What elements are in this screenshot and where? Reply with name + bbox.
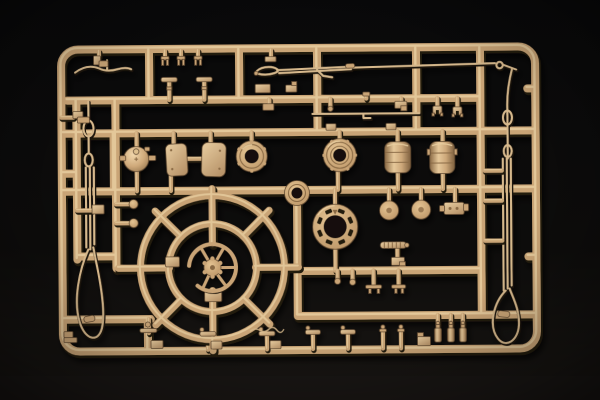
photo-stage bbox=[0, 0, 600, 400]
sprue-photo bbox=[0, 0, 600, 400]
vignette bbox=[0, 0, 600, 400]
